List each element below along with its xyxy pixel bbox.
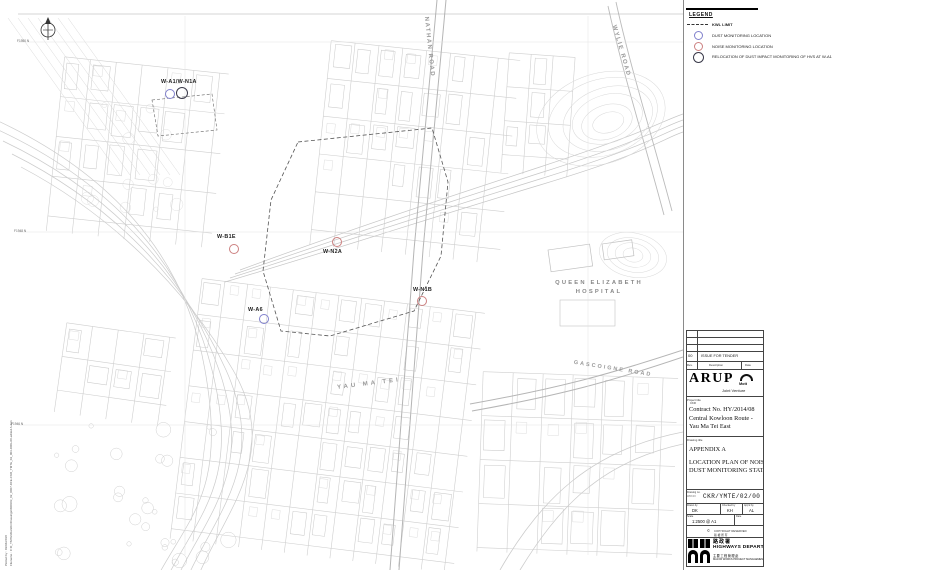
relocation-marker bbox=[176, 87, 188, 99]
highways-dept-logo bbox=[688, 539, 711, 564]
legend-item-label: KWL LIMIT bbox=[712, 22, 733, 27]
revision-table-line bbox=[686, 337, 763, 338]
revision-table-line bbox=[686, 330, 763, 331]
noise-monitoring-symbol bbox=[694, 42, 703, 51]
noise-marker bbox=[417, 296, 427, 306]
works-area-boundary bbox=[152, 94, 217, 136]
drawn-by-value: DK bbox=[692, 508, 698, 513]
legend-title: LEGEND bbox=[689, 12, 713, 18]
project-name-line2: Yau Ma Tei East bbox=[689, 423, 764, 430]
dust-marker bbox=[259, 314, 269, 324]
cell-divider bbox=[742, 503, 743, 514]
appendix-label: APPENDIX A bbox=[689, 446, 764, 453]
station-label: W-N1B bbox=[413, 287, 432, 293]
noise-marker bbox=[332, 237, 342, 247]
approved-by-value: AL bbox=[749, 508, 754, 513]
drawing-no-label: Drawing no. bbox=[687, 491, 700, 494]
title-block-right-border bbox=[763, 330, 764, 567]
legend-topline bbox=[686, 8, 758, 10]
project-name-line1: Central Kowloon Route - bbox=[689, 415, 764, 422]
revision-table-line bbox=[686, 344, 763, 345]
contract-number: Contract No. HY/2014/08 bbox=[689, 406, 764, 413]
drawing-sheet: W-A1/W-N1AW-B1EW-N2AW-N1BW-A6NATHAN ROAD… bbox=[0, 0, 949, 570]
drawing-no-sub: WDK03 bbox=[687, 495, 696, 498]
legend-item-label: DUST MONITORING LOCATION bbox=[712, 33, 771, 38]
noise-marker bbox=[229, 244, 239, 254]
title-block-panel: LEGEND KWL LIMIT DUST MONITORING LOCATIO… bbox=[683, 0, 949, 570]
dust-marker bbox=[165, 89, 175, 99]
revision-col-date: Date bbox=[745, 363, 751, 367]
north-arrow-icon bbox=[36, 13, 60, 43]
drawing-title-line2: DUST MONITORING STATIONS bbox=[689, 467, 764, 474]
revision-table-divider bbox=[697, 330, 698, 369]
drawing-number: CKR/YMTE/02/00 bbox=[703, 493, 762, 500]
dust-monitoring-symbol bbox=[694, 31, 703, 40]
revision-number: 00 bbox=[688, 353, 692, 358]
legend-item-label: NOISE MONITORING LOCATION bbox=[712, 44, 773, 49]
drawing-title-label: Drawing title bbox=[687, 438, 702, 442]
relocation-symbol bbox=[693, 52, 704, 63]
station-label: W-A6 bbox=[248, 307, 263, 313]
hwd-name-cn: 路政署 bbox=[713, 538, 731, 545]
plot-filename: Filename : C:\0_YMTE\WorkDir\Drawings\WD… bbox=[9, 420, 14, 566]
block-divider bbox=[686, 396, 764, 397]
project-sub-label: CKR bbox=[690, 401, 696, 405]
legend-item-label: RELOCATION OF DUST IMPACT MONITORING OF … bbox=[712, 54, 832, 59]
arup-logo: ARUP bbox=[689, 371, 734, 387]
hwd-office-en: MAJOR WORKS PROJECT MANAGEMENT OFFICE bbox=[713, 558, 763, 561]
drawing-title-line1: LOCATION PLAN OF NOISE AND bbox=[689, 459, 764, 466]
grid-reference-label: F1948 N bbox=[14, 229, 26, 233]
hwd-name-en: HIGHWAYS DEPARTMENT bbox=[713, 545, 763, 550]
grid-reference-label: F1950 N bbox=[17, 39, 29, 43]
mott-macdonald-logo: Mott bbox=[739, 382, 747, 386]
checked-by-value: KH bbox=[727, 508, 733, 513]
revision-table-divider bbox=[741, 361, 742, 369]
kwl-limit-symbol bbox=[687, 24, 708, 25]
revision-table-line bbox=[686, 351, 763, 352]
mott-macdonald-arc-icon bbox=[740, 374, 753, 381]
title-block-left-border bbox=[686, 330, 687, 567]
date-label: Date bbox=[736, 515, 741, 518]
station-label: W-B1E bbox=[217, 234, 236, 240]
revision-description: ISSUE FOR TENDER bbox=[701, 354, 738, 358]
block-divider bbox=[686, 525, 764, 526]
cell-divider bbox=[720, 503, 721, 514]
revision-col-desc: Description bbox=[709, 363, 723, 367]
revision-table-line bbox=[686, 361, 763, 362]
block-divider bbox=[686, 514, 764, 515]
place-label: QUEEN ELIZABETHHOSPITAL bbox=[529, 279, 669, 298]
block-divider bbox=[686, 436, 764, 437]
revision-table-line bbox=[686, 369, 764, 370]
joint-venture-label: Joint Venture bbox=[722, 388, 745, 393]
block-divider bbox=[686, 566, 764, 567]
revision-col-rev: Rev. bbox=[687, 363, 693, 367]
scale-value: 1:2500 @ A1 bbox=[692, 519, 716, 524]
station-label: W-N2A bbox=[323, 249, 342, 255]
station-label: W-A1/W-N1A bbox=[161, 79, 197, 85]
cell-divider bbox=[734, 514, 735, 525]
plot-info: Plotted by : 03/04/2018 Filename : C:\0_… bbox=[4, 420, 15, 566]
copyright-symbol: © bbox=[707, 528, 710, 533]
block-divider bbox=[686, 489, 764, 490]
